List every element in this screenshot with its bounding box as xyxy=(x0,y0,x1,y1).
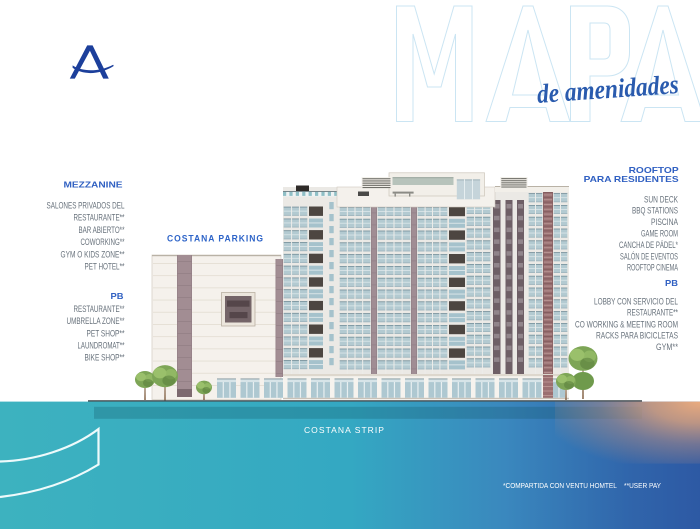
svg-text:COWORKING**: COWORKING** xyxy=(81,237,125,248)
svg-text:CO WORKING & MEETING ROOM: CO WORKING & MEETING ROOM xyxy=(575,319,678,330)
svg-text:CANCHA DE PÁDEL*: CANCHA DE PÁDEL* xyxy=(619,240,678,251)
svg-text:PB: PB xyxy=(111,291,124,301)
svg-text:PET SHOP**: PET SHOP** xyxy=(87,328,125,339)
svg-text:ROOFTOP CINEMA: ROOFTOP CINEMA xyxy=(627,263,678,274)
svg-text:PISCINA: PISCINA xyxy=(651,217,678,228)
svg-text:SALONES PRIVADOS DEL: SALONES PRIVADOS DEL xyxy=(47,200,125,211)
svg-text:RACKS PARA BICICLETAS: RACKS PARA BICICLETAS xyxy=(596,330,678,341)
svg-text:*COMPARTIDA CON VENTU HOMTEL: *COMPARTIDA CON VENTU HOMTEL **USER PAY xyxy=(503,481,661,490)
svg-text:GYM**: GYM** xyxy=(656,342,678,353)
svg-text:RESTAURANTE**: RESTAURANTE** xyxy=(74,213,125,224)
svg-text:GYM O KIDS ZONE**: GYM O KIDS ZONE** xyxy=(61,250,125,261)
svg-text:PARA RESIDENTES: PARA RESIDENTES xyxy=(584,174,679,184)
svg-text:RESTAURANTE**: RESTAURANTE** xyxy=(74,304,125,315)
svg-text:UMBRELLA ZONE**: UMBRELLA ZONE** xyxy=(67,316,125,327)
svg-text:RESTAURANTE**: RESTAURANTE** xyxy=(627,307,678,318)
svg-text:LAUNDROMAT**: LAUNDROMAT** xyxy=(78,341,125,352)
svg-text:LOBBY CON SERVICIO DEL: LOBBY CON SERVICIO DEL xyxy=(594,296,678,307)
svg-text:BIKE SHOP**: BIKE SHOP** xyxy=(85,353,125,364)
svg-text:SALÓN DE EVENTOS: SALÓN DE EVENTOS xyxy=(620,251,678,262)
svg-text:PB: PB xyxy=(665,278,678,288)
svg-text:SUN DECK: SUN DECK xyxy=(644,194,678,205)
svg-text:BBQ STATIONS: BBQ STATIONS xyxy=(632,206,678,217)
svg-text:PET HOTEL**: PET HOTEL** xyxy=(85,261,125,272)
svg-text:GAME ROOM: GAME ROOM xyxy=(641,229,678,240)
svg-text:COSTANA STRIP: COSTANA STRIP xyxy=(304,426,385,435)
svg-text:COSTANA PARKING: COSTANA PARKING xyxy=(167,234,264,244)
svg-text:MEZZANINE: MEZZANINE xyxy=(64,180,123,190)
svg-text:BAR ABIERTO**: BAR ABIERTO** xyxy=(79,225,125,236)
